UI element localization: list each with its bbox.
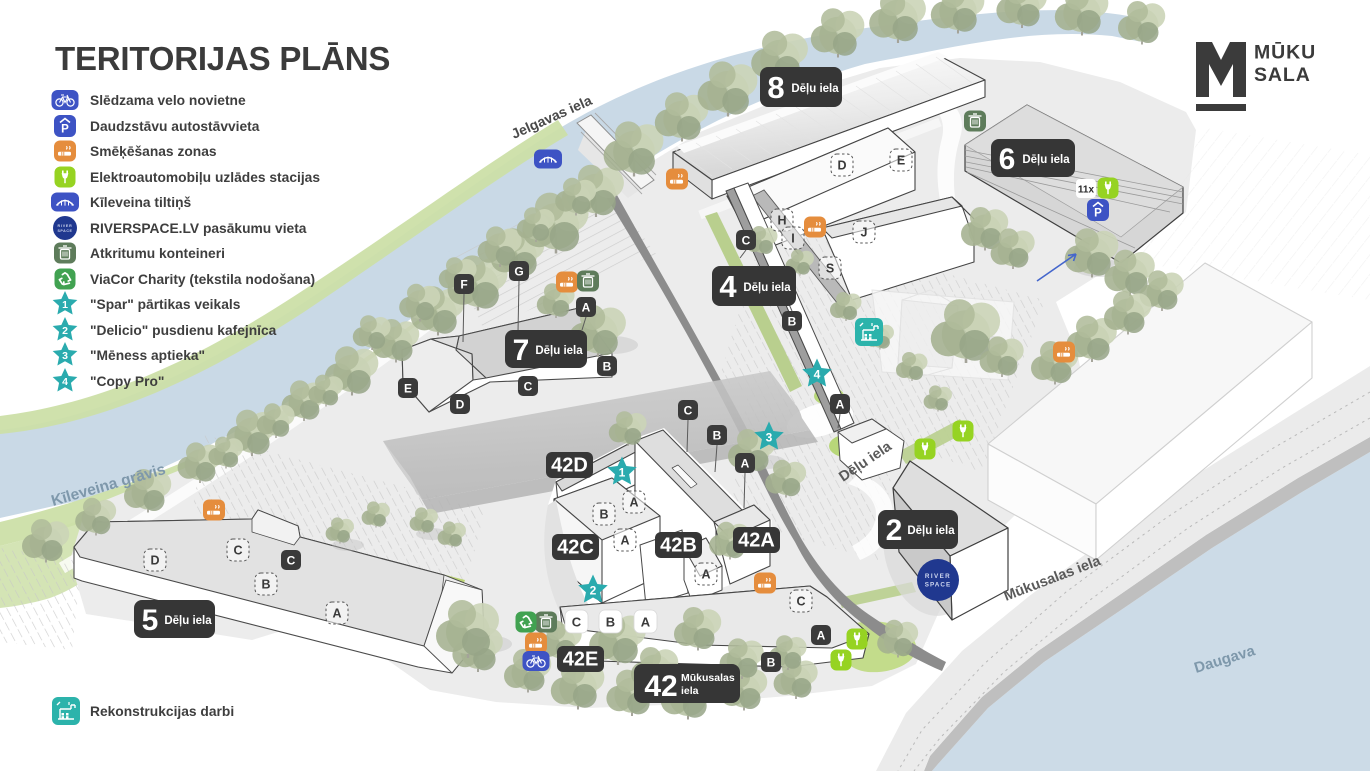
svg-text:42: 42 bbox=[644, 670, 677, 703]
svg-text:2: 2 bbox=[590, 584, 597, 598]
svg-text:C: C bbox=[524, 380, 533, 394]
svg-text:MŪKU: MŪKU bbox=[1254, 42, 1316, 64]
svg-text:ViaCor Charity (tekstila nodoš: ViaCor Charity (tekstila nodošana) bbox=[90, 272, 315, 287]
svg-text:B: B bbox=[606, 615, 615, 630]
svg-text:D: D bbox=[837, 159, 846, 173]
svg-text:42B: 42B bbox=[660, 535, 697, 557]
svg-text:D: D bbox=[150, 554, 159, 568]
svg-text:Dēļu iela: Dēļu iela bbox=[164, 615, 212, 627]
svg-text:J: J bbox=[861, 226, 868, 240]
svg-text:Dēļu iela: Dēļu iela bbox=[907, 525, 955, 537]
svg-text:B: B bbox=[599, 508, 608, 522]
svg-text:H: H bbox=[777, 214, 786, 228]
svg-text:F: F bbox=[460, 278, 467, 292]
svg-text:A: A bbox=[629, 496, 638, 510]
svg-text:Daudzstāvu autostāvvieta: Daudzstāvu autostāvvieta bbox=[90, 119, 260, 134]
svg-text:A: A bbox=[332, 607, 341, 621]
svg-text:42C: 42C bbox=[557, 537, 594, 559]
svg-text:C: C bbox=[572, 615, 582, 630]
svg-text:2: 2 bbox=[886, 514, 903, 547]
svg-text:"Spar" pārtikas veikals: "Spar" pārtikas veikals bbox=[90, 297, 241, 312]
svg-text:Kīleveina tiltiņš: Kīleveina tiltiņš bbox=[90, 195, 192, 210]
svg-text:B: B bbox=[767, 656, 776, 670]
svg-text:Rekonstrukcijas darbi: Rekonstrukcijas darbi bbox=[90, 704, 234, 719]
svg-text:C: C bbox=[287, 554, 296, 568]
svg-text:3: 3 bbox=[62, 350, 68, 362]
svg-text:11x: 11x bbox=[1078, 185, 1095, 196]
svg-text:TERITORIJAS PLĀNS: TERITORIJAS PLĀNS bbox=[55, 40, 390, 77]
svg-text:I: I bbox=[791, 232, 794, 246]
svg-text:1: 1 bbox=[62, 299, 68, 311]
svg-text:Dēļu iela: Dēļu iela bbox=[791, 83, 839, 95]
svg-text:B: B bbox=[788, 315, 797, 329]
svg-text:SALA: SALA bbox=[1254, 64, 1311, 86]
svg-text:"Mēness aptieka": "Mēness aptieka" bbox=[90, 348, 205, 363]
svg-text:3: 3 bbox=[766, 431, 773, 445]
svg-text:C: C bbox=[742, 234, 751, 248]
svg-text:Dēļu iela: Dēļu iela bbox=[743, 282, 791, 294]
svg-text:A: A bbox=[620, 534, 629, 548]
svg-text:4: 4 bbox=[814, 368, 821, 382]
svg-text:"Delicio" pusdienu kafejnīca: "Delicio" pusdienu kafejnīca bbox=[90, 323, 277, 338]
svg-text:A: A bbox=[741, 457, 750, 471]
svg-text:8: 8 bbox=[767, 70, 784, 105]
svg-text:A: A bbox=[836, 398, 845, 412]
svg-text:2: 2 bbox=[62, 325, 68, 337]
svg-text:Slēdzama velo novietne: Slēdzama velo novietne bbox=[90, 93, 246, 108]
svg-text:B: B bbox=[261, 578, 270, 592]
svg-text:4: 4 bbox=[719, 269, 737, 304]
svg-text:E: E bbox=[897, 154, 905, 168]
svg-text:1: 1 bbox=[619, 466, 626, 480]
svg-text:42D: 42D bbox=[551, 455, 588, 477]
svg-text:Elektroautomobiļu uzlādes stac: Elektroautomobiļu uzlādes stacijas bbox=[90, 170, 320, 185]
svg-text:RIVERSPACE.LV pasākumu vieta: RIVERSPACE.LV pasākumu vieta bbox=[90, 221, 307, 236]
svg-text:Atkritumu konteineri: Atkritumu konteineri bbox=[90, 246, 225, 261]
svg-text:6: 6 bbox=[999, 143, 1016, 176]
svg-text:4: 4 bbox=[62, 376, 68, 388]
svg-text:Mūkusalas: Mūkusalas bbox=[681, 672, 735, 684]
svg-text:A: A bbox=[641, 615, 651, 630]
svg-text:iela: iela bbox=[681, 685, 699, 697]
svg-text:B: B bbox=[713, 429, 722, 443]
svg-text:D: D bbox=[456, 398, 465, 412]
svg-text:Smēķēšanas zonas: Smēķēšanas zonas bbox=[90, 144, 217, 159]
svg-text:S: S bbox=[826, 262, 834, 276]
svg-text:"Copy Pro": "Copy Pro" bbox=[90, 374, 164, 389]
svg-text:Dēļu iela: Dēļu iela bbox=[1022, 154, 1070, 166]
svg-text:E: E bbox=[404, 382, 412, 396]
svg-text:C: C bbox=[684, 404, 693, 418]
svg-text:5: 5 bbox=[142, 604, 159, 637]
svg-text:Dēļu iela: Dēļu iela bbox=[535, 345, 583, 357]
svg-text:A: A bbox=[701, 568, 710, 582]
svg-text:A: A bbox=[582, 301, 591, 315]
svg-text:C: C bbox=[233, 544, 242, 558]
svg-text:7: 7 bbox=[513, 334, 530, 367]
svg-text:A: A bbox=[817, 629, 826, 643]
svg-text:C: C bbox=[796, 595, 805, 609]
svg-text:42E: 42E bbox=[563, 649, 599, 671]
svg-text:G: G bbox=[514, 265, 523, 279]
svg-text:42A: 42A bbox=[738, 530, 775, 552]
svg-text:B: B bbox=[603, 360, 612, 374]
